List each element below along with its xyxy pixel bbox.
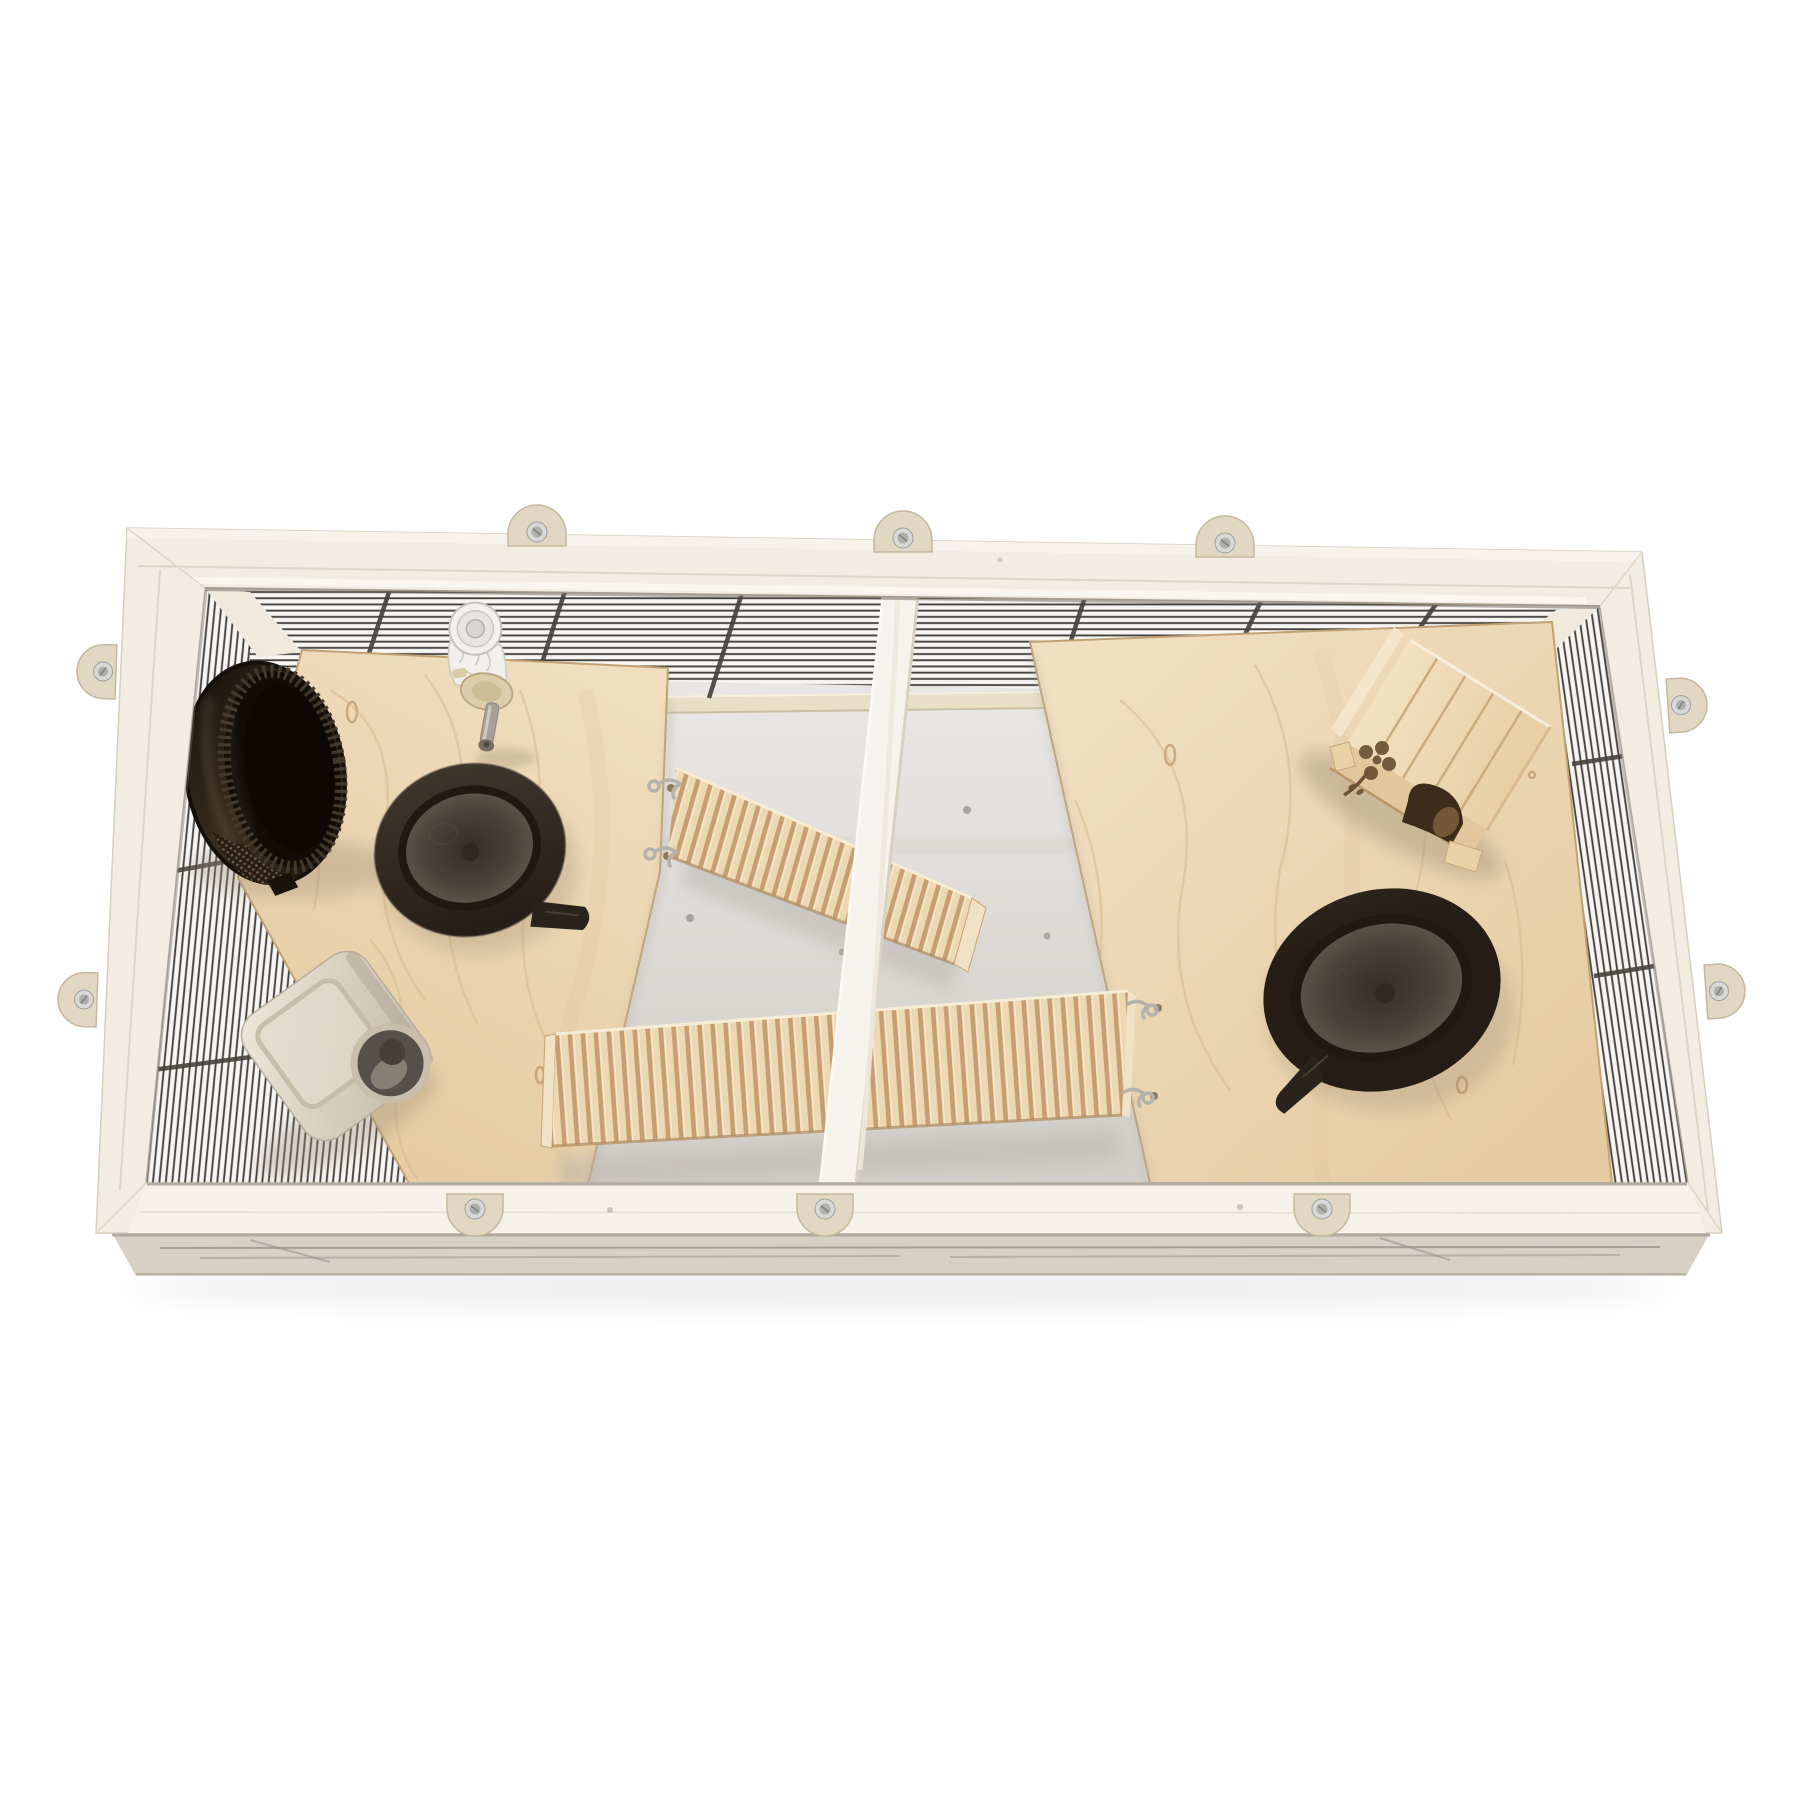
screw-dot [963, 806, 971, 814]
cage-top-view-photo [0, 0, 1800, 1800]
frame-screw-dot [998, 558, 1003, 563]
petal-hole [1382, 757, 1396, 771]
screw-dot [1044, 933, 1051, 940]
cage [57, 505, 1747, 1312]
photo-stage [0, 0, 1800, 1800]
frame-screw-dot [1237, 1204, 1243, 1210]
screw-dot [686, 914, 694, 922]
flower-center-hole [1373, 756, 1382, 765]
petal-hole [1359, 745, 1373, 759]
frame-screw-dot [607, 1207, 613, 1213]
frame-bottom-face [128, 1183, 1706, 1233]
seam [140, 1212, 1698, 1213]
petal-hole [1375, 741, 1389, 755]
under-wire [160, 1247, 1660, 1248]
